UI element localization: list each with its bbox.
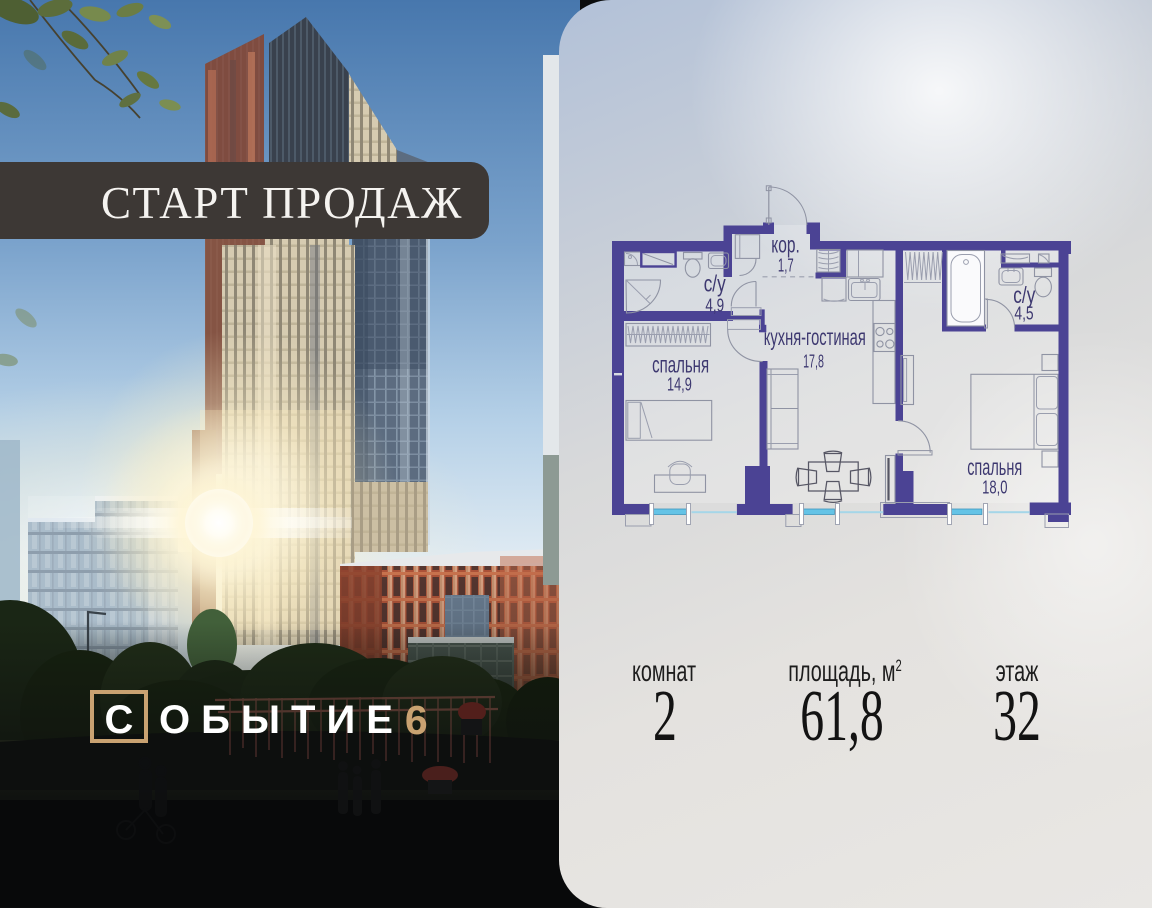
svg-text:14,9: 14,9 bbox=[667, 373, 692, 394]
svg-text:с/у: с/у bbox=[704, 271, 726, 297]
svg-text:4,9: 4,9 bbox=[705, 294, 724, 315]
svg-text:17,8: 17,8 bbox=[803, 350, 824, 371]
svg-text:4,5: 4,5 bbox=[1014, 303, 1033, 324]
svg-text:1,7: 1,7 bbox=[778, 254, 794, 275]
svg-text:кухня-гостиная: кухня-гостиная bbox=[764, 324, 866, 350]
svg-text:18,0: 18,0 bbox=[982, 477, 1007, 498]
